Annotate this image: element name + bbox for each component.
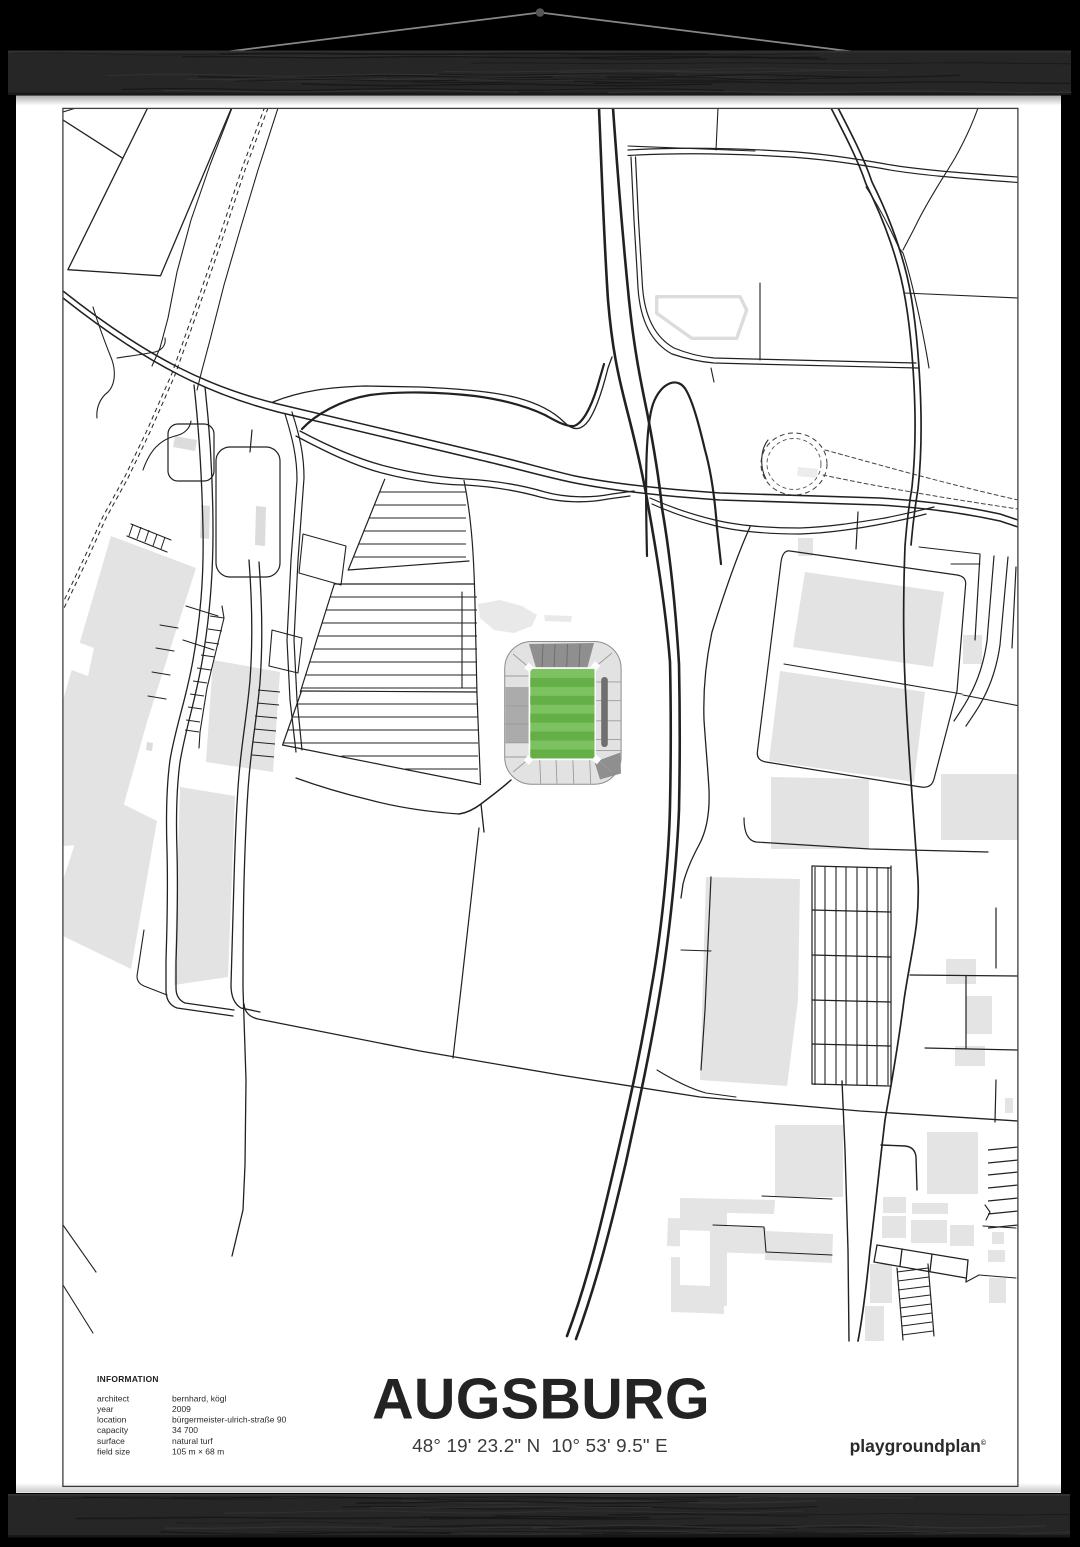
svg-text:2009: 2009 xyxy=(172,1404,191,1414)
svg-text:location: location xyxy=(97,1415,127,1425)
svg-text:year: year xyxy=(97,1404,114,1414)
svg-text:bürgermeister-ulrich-straße 90: bürgermeister-ulrich-straße 90 xyxy=(172,1415,287,1425)
svg-text:natural turf: natural turf xyxy=(172,1436,213,1446)
svg-text:34 700: 34 700 xyxy=(172,1425,198,1435)
svg-text:surface: surface xyxy=(97,1436,125,1446)
svg-text:48° 19' 23.2" N 10° 53' 9.5": 48° 19' 23.2" N 10° 53' 9.5" E xyxy=(412,1435,668,1456)
svg-text:playgroundplan©: playgroundplan© xyxy=(850,1436,987,1456)
svg-text:AUGSBURG: AUGSBURG xyxy=(372,1368,710,1432)
svg-text:capacity: capacity xyxy=(97,1425,129,1435)
svg-text:105 m × 68 m: 105 m × 68 m xyxy=(172,1446,224,1456)
svg-text:architect: architect xyxy=(97,1394,130,1404)
svg-text:INFORMATION: INFORMATION xyxy=(97,1374,159,1384)
svg-text:field size: field size xyxy=(97,1446,130,1456)
svg-text:bernhard, kögl: bernhard, kögl xyxy=(172,1394,226,1404)
